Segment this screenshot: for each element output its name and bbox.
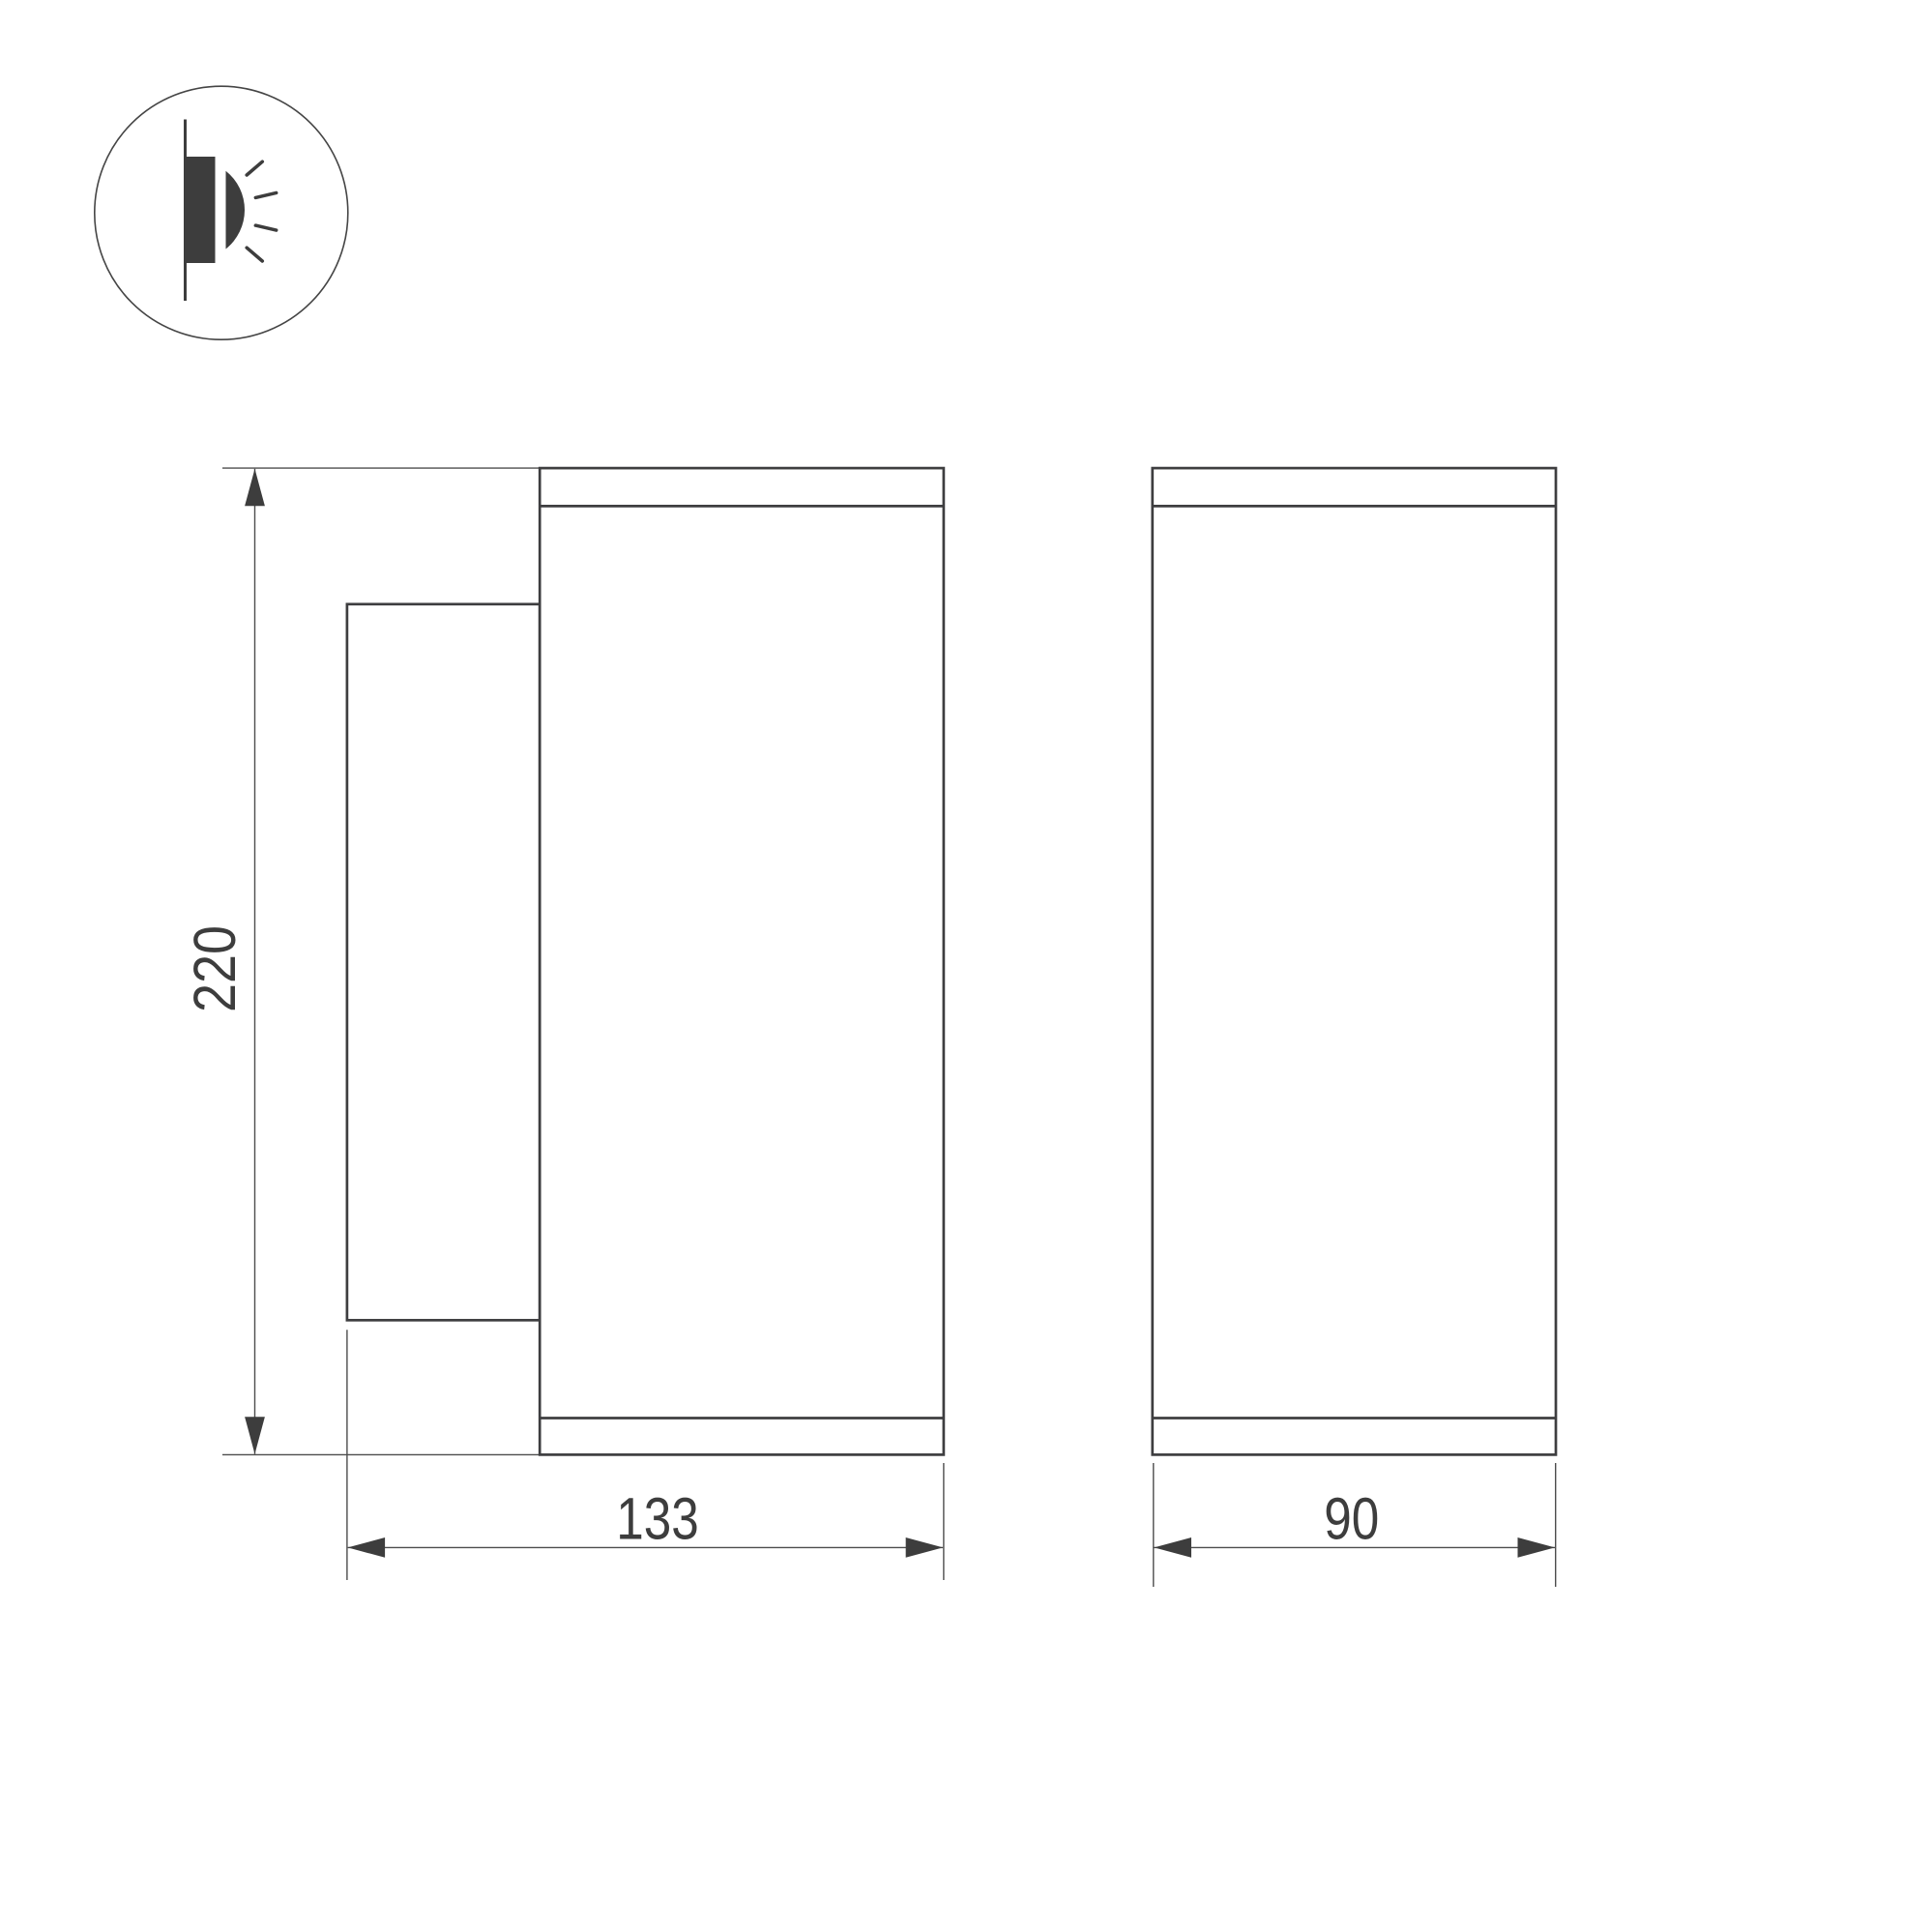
svg-text:90: 90 <box>1324 1485 1379 1551</box>
svg-text:133: 133 <box>616 1485 698 1551</box>
svg-text:220: 220 <box>183 925 249 1012</box>
